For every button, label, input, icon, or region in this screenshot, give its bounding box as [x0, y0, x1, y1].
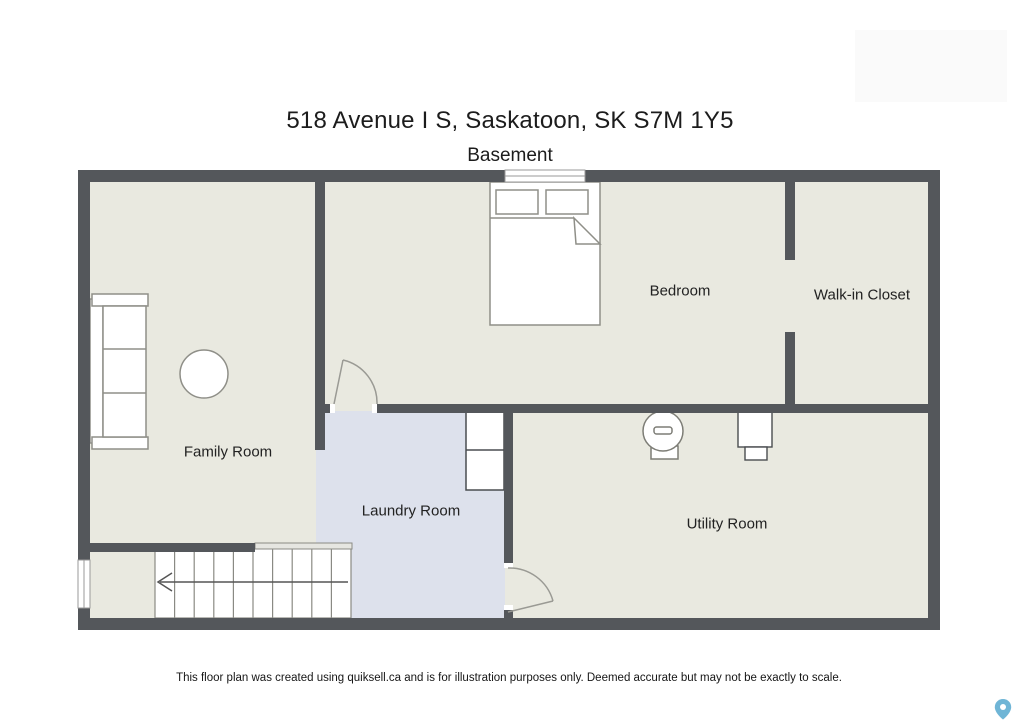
label-family-room: Family Room: [184, 444, 272, 461]
disclaimer-text: This floor plan was created using quikse…: [176, 672, 842, 684]
floorplan-drawing: [0, 0, 1019, 720]
label-bedroom: Bedroom: [650, 283, 711, 300]
map-pin-icon[interactable]: [995, 699, 1011, 720]
bed: [490, 182, 600, 325]
pillow-left: [496, 190, 538, 214]
pillow-right: [546, 190, 588, 214]
wall-above-stairs: [90, 543, 255, 552]
wall-closet-upper: [785, 182, 795, 260]
sofa: [90, 294, 148, 449]
coffee-table: [180, 350, 228, 398]
wall-laundry-utility: [504, 413, 513, 565]
handrail: [255, 543, 352, 549]
window-left: [78, 560, 90, 608]
window-top: [505, 170, 585, 182]
wall-closet-lower: [785, 332, 795, 404]
wall-bedroom-bottom: [377, 404, 928, 413]
wall-family-bedroom: [315, 182, 325, 450]
floorplan-page: 518 Avenue I S, Saskatoon, SK S7M 1Y5 Ba…: [0, 0, 1019, 720]
label-walk-in-closet: Walk-in Closet: [814, 287, 910, 304]
label-utility-room: Utility Room: [687, 516, 768, 533]
label-laundry-room: Laundry Room: [362, 503, 460, 520]
washer-dryer-stack: [466, 410, 504, 490]
